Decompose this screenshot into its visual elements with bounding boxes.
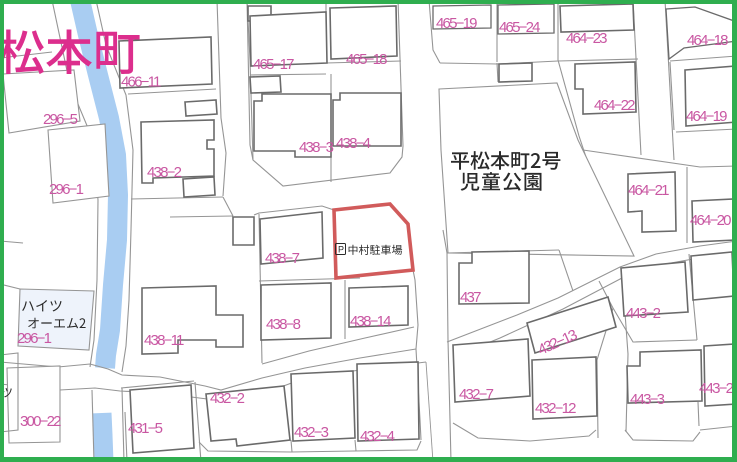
svg-text:443−3: 443−3 bbox=[630, 391, 665, 408]
svg-text:438−4: 438−4 bbox=[336, 135, 371, 152]
svg-text:465−17: 465−17 bbox=[253, 56, 294, 73]
svg-text:296−1: 296−1 bbox=[17, 330, 52, 347]
svg-text:432−12: 432−12 bbox=[535, 400, 576, 417]
svg-text:464−18: 464−18 bbox=[687, 32, 728, 49]
svg-text:443−2: 443−2 bbox=[626, 305, 661, 322]
svg-text:300−22: 300−22 bbox=[20, 413, 61, 430]
svg-text:437: 437 bbox=[460, 289, 481, 306]
svg-text:438−3: 438−3 bbox=[299, 139, 334, 156]
svg-text:464−20: 464−20 bbox=[690, 212, 731, 229]
svg-text:438−2: 438−2 bbox=[147, 164, 182, 181]
svg-text:464−23: 464−23 bbox=[566, 30, 607, 47]
svg-text:464−22: 464−22 bbox=[594, 97, 635, 114]
svg-text:465−24: 465−24 bbox=[499, 19, 540, 36]
svg-text:432−3: 432−3 bbox=[294, 424, 329, 441]
svg-text:465−18: 465−18 bbox=[346, 51, 387, 68]
svg-text:431−5: 431−5 bbox=[128, 420, 163, 437]
svg-text:432−7: 432−7 bbox=[459, 386, 494, 403]
svg-text:438−7: 438−7 bbox=[265, 250, 300, 267]
svg-text:464−19: 464−19 bbox=[686, 108, 727, 125]
svg-text:464−21: 464−21 bbox=[628, 182, 669, 199]
svg-text:432−2: 432−2 bbox=[210, 390, 245, 407]
svg-text:432−4: 432−4 bbox=[360, 428, 395, 445]
svg-text:443−20: 443−20 bbox=[699, 380, 737, 397]
svg-text:466−11: 466−11 bbox=[121, 74, 161, 91]
svg-text:438−14: 438−14 bbox=[350, 313, 391, 330]
svg-text:465−19: 465−19 bbox=[436, 15, 477, 32]
svg-text:296−1: 296−1 bbox=[49, 181, 84, 198]
svg-text:438−11: 438−11 bbox=[144, 332, 184, 349]
svg-text:P: P bbox=[338, 245, 344, 255]
svg-text:296−5: 296−5 bbox=[43, 111, 78, 128]
svg-text:438−8: 438−8 bbox=[266, 316, 301, 333]
